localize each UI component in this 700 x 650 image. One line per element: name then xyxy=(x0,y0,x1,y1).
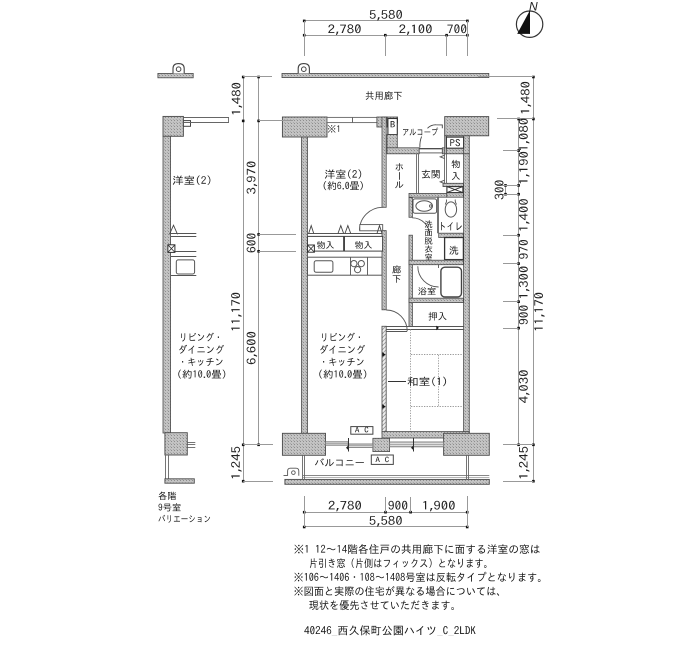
svg-text:N: N xyxy=(529,0,538,14)
